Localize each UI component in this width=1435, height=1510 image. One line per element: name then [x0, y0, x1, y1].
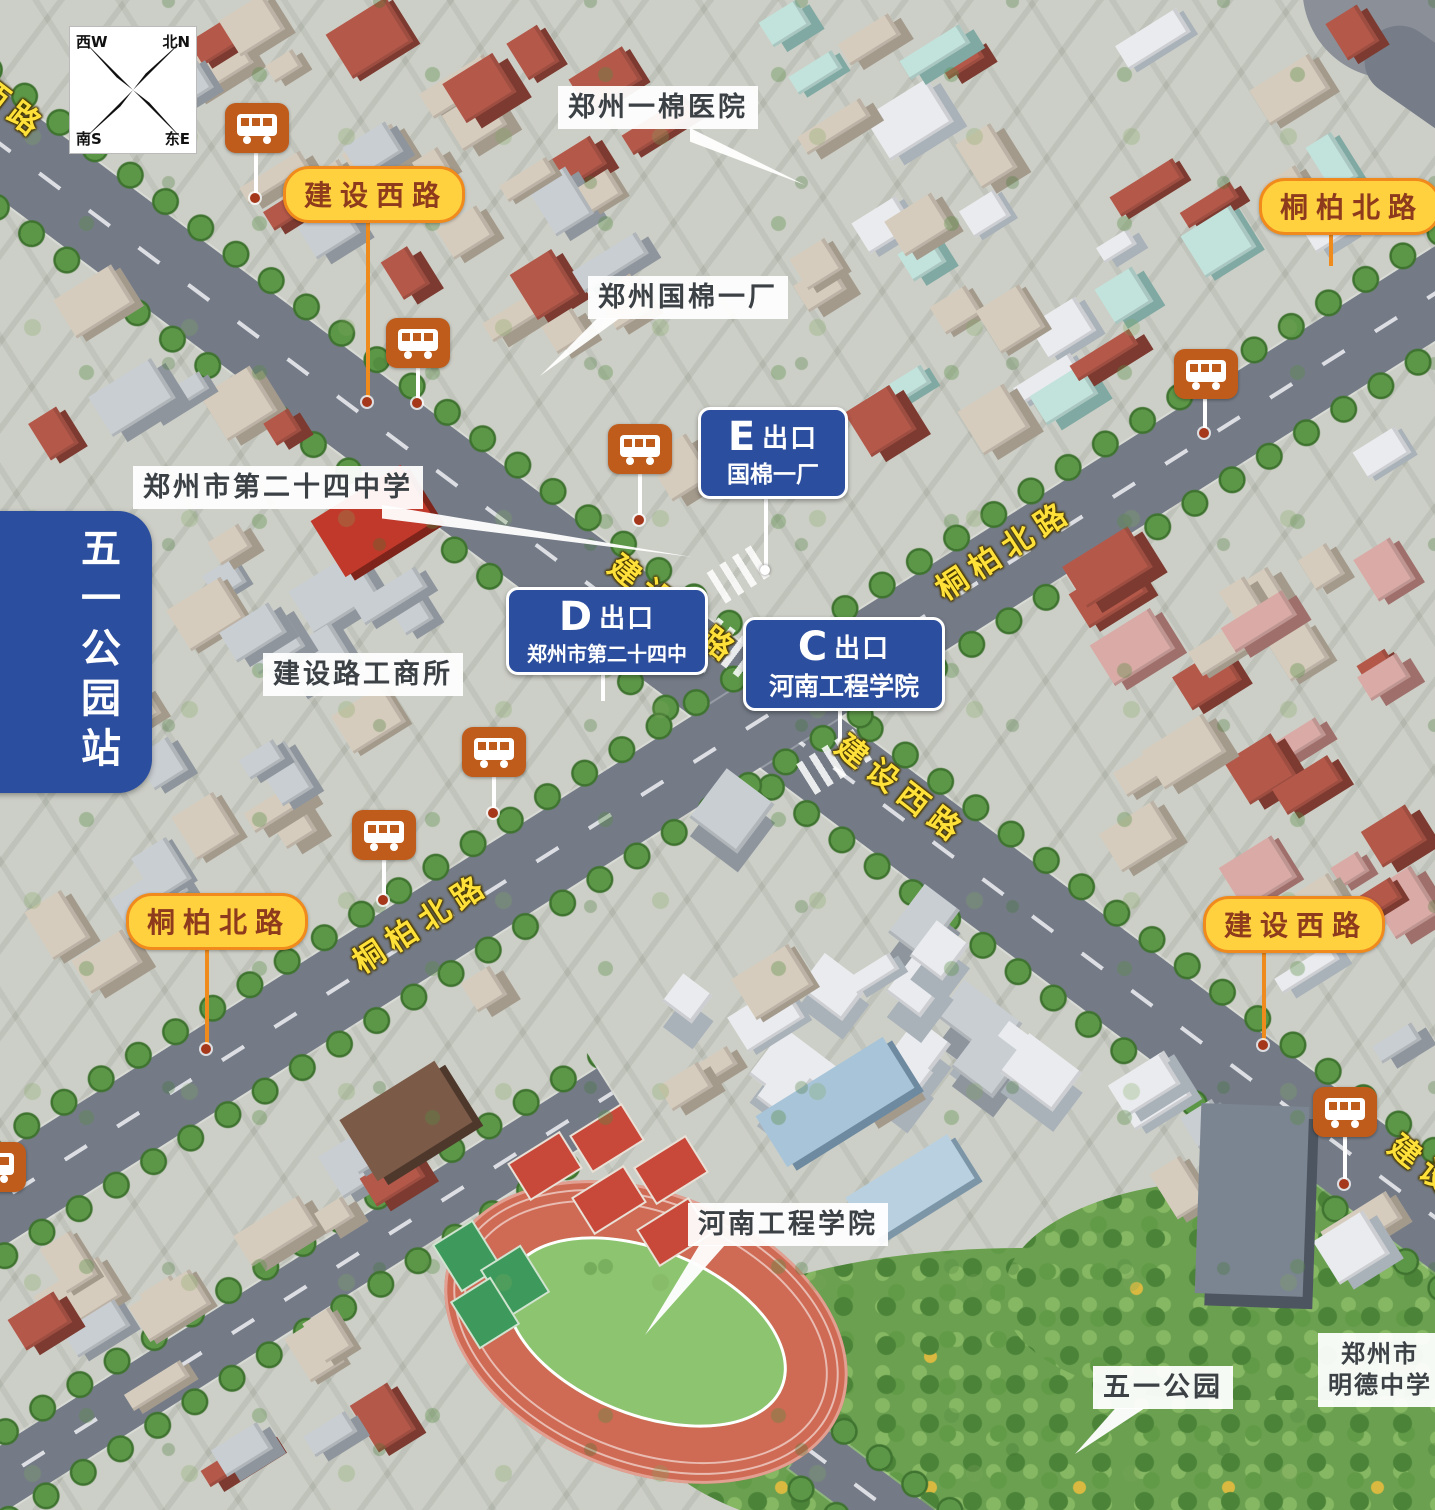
landmark-label-wuyi-park: 五一公园	[1093, 1366, 1233, 1409]
bus-stop-stem	[492, 775, 496, 811]
bus-stop-dot	[250, 193, 260, 203]
exit-word: 出口	[762, 424, 818, 454]
wuyi-park-station-area-map: 建设西路 桐柏北路 建设西路 桐柏北路 建设西路 建设西路 建设西路 桐柏北路 …	[0, 0, 1435, 1510]
exit-e-place: 国棉一厂	[711, 462, 835, 490]
bus-stop-stem	[416, 365, 420, 401]
bus-stop-dot	[412, 398, 422, 408]
bus-stop-icon	[608, 424, 672, 474]
bus-stop-stem	[638, 470, 642, 518]
mingde-school-tower	[1195, 1103, 1310, 1297]
landmark-label-jianshe-business-office: 建设路工商所	[263, 653, 463, 696]
exit-e-title: E出口	[711, 412, 835, 462]
road-badge-tongbai-north-left: 桐柏北路	[126, 893, 308, 950]
exit-word: 出口	[834, 634, 890, 664]
landmark-label-henan-engineering-college: 河南工程学院	[688, 1203, 888, 1246]
exit-c-place: 河南工程学院	[756, 672, 932, 702]
exit-letter: E	[728, 414, 757, 460]
compass-east-label: 东E	[165, 128, 190, 149]
exit-point-dot	[760, 565, 770, 575]
mingde-line2: 明德中学	[1328, 1370, 1432, 1401]
exit-label-c: C出口 河南工程学院	[743, 617, 945, 711]
exit-letter: C	[798, 624, 829, 670]
compass-rose-icon: 西W 北N 南S 东E	[70, 27, 196, 153]
bus-stop-stem	[1203, 395, 1207, 431]
bus-stop-icon	[352, 810, 416, 860]
bus-stop-dot	[1339, 1179, 1349, 1189]
exit-word: 出口	[599, 604, 655, 634]
mingde-line1: 郑州市	[1328, 1339, 1432, 1370]
bus-stop-stem	[382, 858, 386, 898]
exit-c-title: C出口	[756, 622, 932, 672]
landmark-label-yimian-hospital: 郑州一棉医院	[558, 86, 758, 129]
bus-stop-icon	[1174, 349, 1238, 399]
bus-stop-dot	[634, 515, 644, 525]
bus-stop-icon	[1313, 1087, 1377, 1137]
road-badge-tongbai-north-top: 桐柏北路	[1259, 178, 1435, 235]
exit-letter: D	[559, 594, 594, 640]
bus-stop-dot	[1199, 428, 1209, 438]
bus-stop-dot	[488, 808, 498, 818]
bus-stop-icon	[225, 103, 289, 153]
road-badge-jianshe-west-top: 建设西路	[283, 166, 465, 223]
road-point-dot	[201, 1044, 211, 1054]
exit-d-title: D出口	[519, 592, 695, 642]
road-point-dot	[1258, 1040, 1268, 1050]
compass-north-label: 北N	[162, 31, 190, 52]
road-point-dot	[362, 397, 372, 407]
badge-leader-stem	[205, 937, 209, 1047]
landmark-label-mingde-middle-school: 郑州市 明德中学	[1318, 1333, 1435, 1407]
exit-d-place: 郑州市第二十四中	[519, 642, 695, 666]
badge-leader-stem	[1262, 940, 1266, 1042]
badge-leader-stem	[366, 210, 370, 400]
bus-stop-dot	[378, 895, 388, 905]
exit-label-d: D出口 郑州市第二十四中	[506, 587, 708, 675]
compass-west-label: 西W	[76, 31, 108, 52]
landmark-label-no24-middle-school: 郑州市第二十四中学	[133, 466, 423, 509]
station-name: 五一公园站	[68, 527, 126, 777]
bus-stop-icon	[386, 318, 450, 368]
bus-stop-stem	[1343, 1134, 1347, 1182]
landmark-label-guomian-factory: 郑州国棉一厂	[588, 276, 788, 319]
station-name-banner: 五一公园站	[0, 511, 152, 793]
bus-stop-stem	[254, 150, 258, 196]
bus-stop-icon	[0, 1142, 26, 1192]
compass-south-label: 南S	[76, 128, 102, 149]
road-badge-jianshe-west-right: 建设西路	[1203, 896, 1385, 953]
bus-stop-icon	[462, 727, 526, 777]
exit-label-e: E出口 国棉一厂	[698, 407, 848, 499]
